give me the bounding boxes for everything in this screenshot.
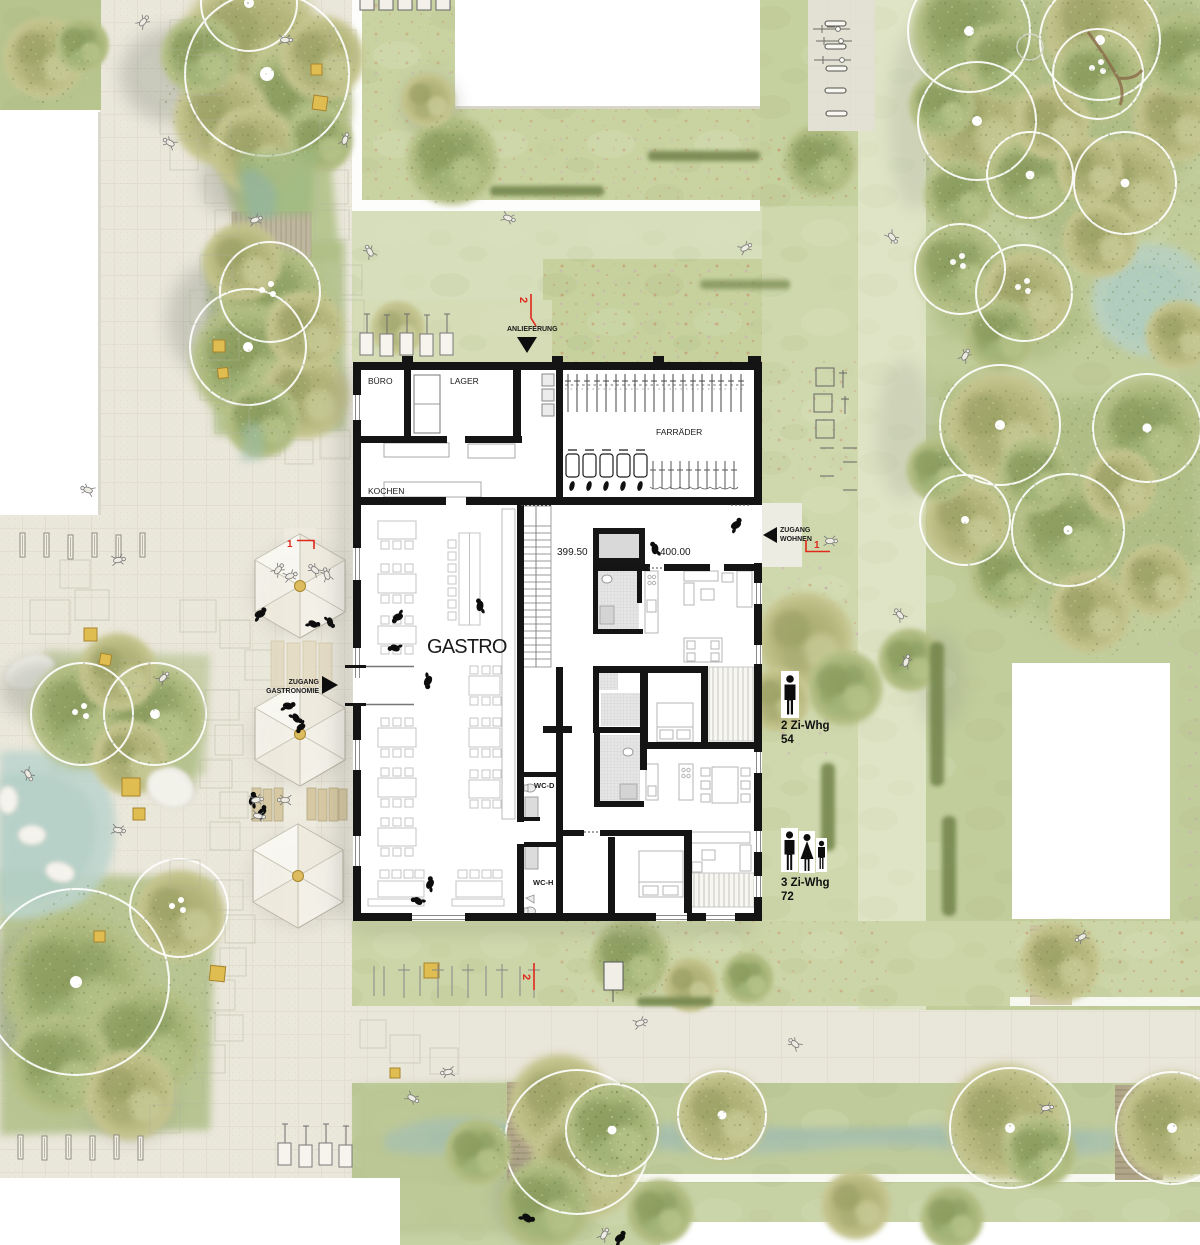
svg-text:WC-H: WC-H (533, 878, 553, 887)
svg-text:LAGER: LAGER (450, 376, 479, 386)
svg-text:3 Zi-Whg: 3 Zi-Whg (781, 877, 830, 889)
svg-text:1: 1 (814, 540, 820, 551)
svg-text:WOHNEN: WOHNEN (780, 536, 812, 543)
svg-text:2 Zi-Whg: 2 Zi-Whg (781, 720, 830, 732)
svg-text:54: 54 (781, 734, 794, 746)
svg-text:WC-D: WC-D (534, 781, 555, 790)
svg-text:BÜRO: BÜRO (368, 376, 393, 386)
svg-text:FARRÄDER: FARRÄDER (656, 427, 702, 437)
svg-text:ZUGANG: ZUGANG (289, 679, 320, 686)
svg-text:ANLIEFERUNG: ANLIEFERUNG (507, 326, 558, 333)
svg-text:400.00: 400.00 (660, 547, 691, 558)
svg-text:399.50: 399.50 (557, 547, 588, 558)
svg-text:GASTRONOMIE: GASTRONOMIE (266, 688, 319, 695)
svg-text:1: 1 (287, 539, 293, 550)
svg-text:72: 72 (781, 891, 794, 903)
svg-text:ZUGANG: ZUGANG (780, 527, 811, 534)
svg-text:2: 2 (517, 297, 529, 303)
svg-text:2: 2 (520, 974, 532, 980)
svg-text:GASTRO: GASTRO (427, 636, 507, 658)
svg-text:KOCHEN: KOCHEN (368, 486, 404, 496)
